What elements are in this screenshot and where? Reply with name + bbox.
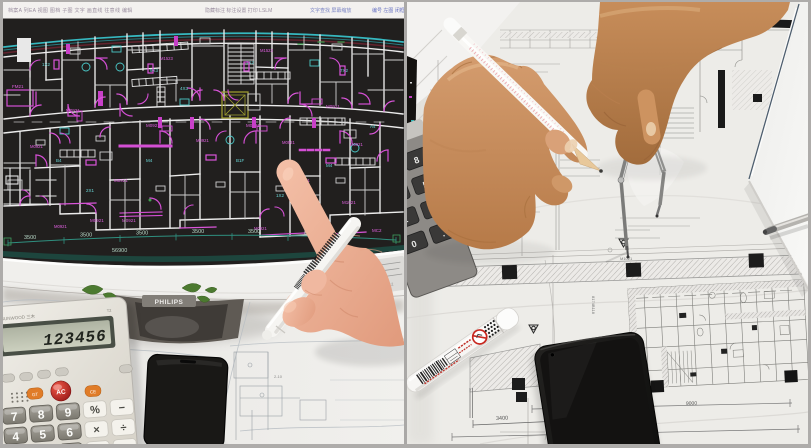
svg-text:M0921: M0921 (114, 178, 128, 183)
svg-text:MC2: MC2 (372, 228, 382, 233)
svg-text:PHILIPS: PHILIPS (155, 299, 184, 306)
svg-text:%: % (90, 404, 101, 417)
svg-text:FM21: FM21 (12, 84, 24, 89)
svg-text:2X1: 2X1 (86, 188, 95, 193)
svg-text:1X2: 1X2 (276, 193, 285, 198)
svg-text:M0921: M0921 (66, 108, 80, 113)
svg-text:×: × (93, 424, 100, 436)
svg-text:7X2: 7X2 (340, 68, 349, 73)
svg-text:−: − (118, 402, 125, 414)
svg-text:M0921: M0921 (282, 140, 295, 145)
svg-text:3500: 3500 (24, 235, 36, 241)
svg-text:M0921: M0921 (350, 142, 363, 147)
svg-text:M1523: M1523 (260, 48, 273, 53)
svg-text:56900: 56900 (112, 248, 127, 254)
svg-text:M0921: M0921 (30, 144, 43, 149)
svg-text:档案A 列EA 视图 图档 子图 文字 画直线: 档案A 列EA 视图 图档 子图 文字 画直线 往意线 编辑 (8, 7, 133, 14)
svg-text:3500: 3500 (136, 231, 148, 237)
svg-text:B1F: B1F (236, 158, 245, 163)
svg-text:M1021: M1021 (620, 256, 633, 261)
svg-text:3500: 3500 (80, 233, 92, 239)
svg-text:AC: AC (56, 389, 66, 397)
svg-text:M1021: M1021 (342, 200, 356, 205)
svg-text:8174B118: 8174B118 (591, 296, 596, 315)
svg-text:A4: A4 (370, 124, 376, 129)
svg-text:9X3: 9X3 (150, 68, 159, 73)
svg-text:1X2: 1X2 (42, 62, 51, 67)
svg-text:M1523: M1523 (160, 56, 173, 61)
svg-text:4X3: 4X3 (180, 86, 189, 91)
svg-text:隐藏标注 标注设置 打印 LSLM: 隐藏标注 标注设置 打印 LSLM (205, 7, 272, 14)
svg-text:2-10: 2-10 (274, 374, 283, 379)
svg-text:B4: B4 (56, 158, 62, 163)
svg-text:M0921: M0921 (122, 218, 136, 223)
svg-text:M0921: M0921 (90, 218, 104, 223)
svg-text:M0921: M0921 (54, 224, 67, 229)
svg-text:GT: GT (32, 392, 39, 397)
svg-text:M0921: M0921 (326, 104, 340, 109)
svg-text:M4: M4 (146, 158, 153, 163)
svg-text:3500: 3500 (248, 229, 260, 235)
svg-text:M4: M4 (326, 163, 333, 168)
svg-text:CE: CE (90, 389, 97, 394)
svg-text:文字查找 屏幕缩放: 文字查找 屏幕缩放 (310, 7, 351, 14)
svg-text:3400: 3400 (496, 416, 508, 422)
svg-text:3500: 3500 (192, 229, 204, 235)
svg-text:9000: 9000 (686, 401, 697, 407)
svg-text:M0921: M0921 (196, 138, 209, 143)
svg-text:÷: ÷ (120, 422, 127, 434)
